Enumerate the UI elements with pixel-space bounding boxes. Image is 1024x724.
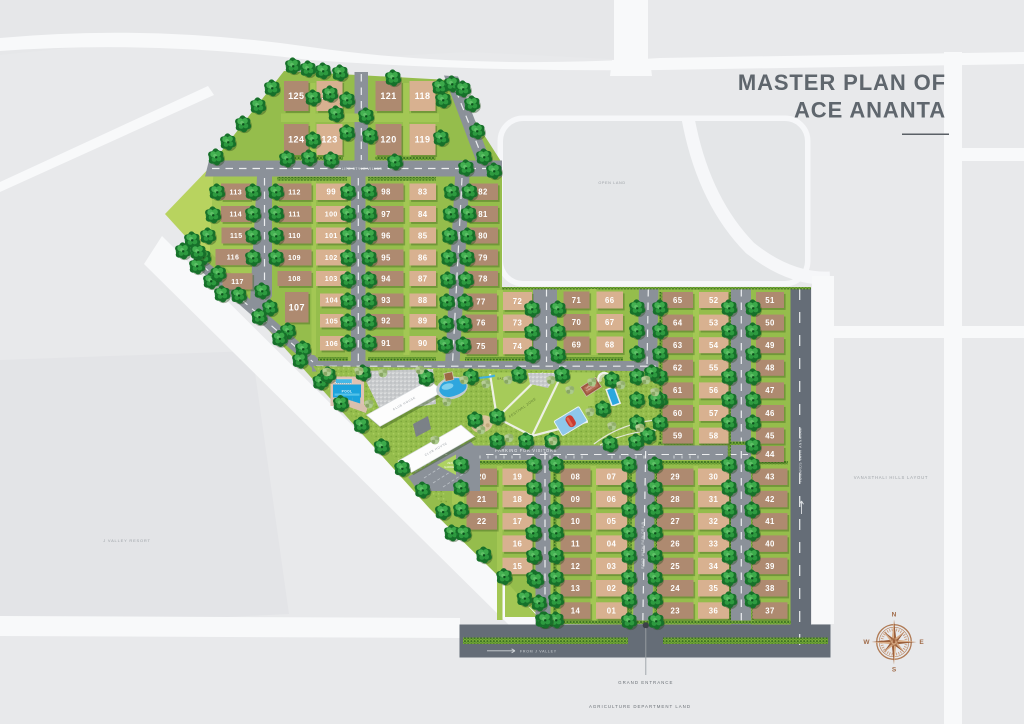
svg-text:VANASTHALI HILLS LAYOUT: VANASTHALI HILLS LAYOUT bbox=[854, 475, 929, 480]
svg-text:125: 125 bbox=[288, 91, 304, 101]
svg-text:63: 63 bbox=[673, 341, 683, 350]
svg-text:13: 13 bbox=[571, 584, 581, 593]
svg-text:90: 90 bbox=[418, 339, 428, 348]
svg-text:LIFE STYLE VILLAS: LIFE STYLE VILLAS bbox=[342, 167, 383, 171]
svg-text:79: 79 bbox=[478, 253, 488, 262]
svg-text:06: 06 bbox=[607, 495, 617, 504]
svg-text:57: 57 bbox=[709, 409, 718, 418]
svg-text:35: 35 bbox=[709, 584, 719, 593]
svg-text:121: 121 bbox=[380, 91, 396, 101]
svg-text:84: 84 bbox=[418, 210, 428, 219]
svg-text:97: 97 bbox=[381, 210, 390, 219]
svg-text:64: 64 bbox=[673, 318, 683, 327]
svg-text:62: 62 bbox=[673, 364, 683, 373]
svg-text:71: 71 bbox=[572, 296, 582, 305]
svg-text:MASTER PLAN OF: MASTER PLAN OF bbox=[738, 70, 946, 95]
svg-text:109: 109 bbox=[288, 255, 301, 262]
svg-text:123: 123 bbox=[321, 135, 337, 145]
svg-text:25: 25 bbox=[671, 562, 681, 571]
svg-text:03: 03 bbox=[607, 562, 617, 571]
svg-text:105: 105 bbox=[325, 318, 338, 325]
svg-text:108: 108 bbox=[288, 276, 301, 283]
svg-text:59: 59 bbox=[673, 431, 683, 440]
svg-text:43: 43 bbox=[765, 473, 775, 482]
svg-text:15: 15 bbox=[513, 562, 523, 571]
svg-text:01: 01 bbox=[607, 606, 617, 615]
svg-text:05: 05 bbox=[607, 517, 617, 526]
svg-text:32: 32 bbox=[709, 517, 719, 526]
svg-text:14: 14 bbox=[571, 606, 581, 615]
svg-text:103: 103 bbox=[325, 276, 338, 283]
svg-text:E: E bbox=[919, 639, 924, 646]
svg-text:119: 119 bbox=[415, 135, 431, 145]
svg-text:11: 11 bbox=[571, 539, 580, 548]
svg-text:27: 27 bbox=[671, 517, 680, 526]
svg-text:100: 100 bbox=[325, 212, 338, 219]
svg-text:78: 78 bbox=[478, 274, 488, 283]
svg-text:28: 28 bbox=[671, 495, 681, 504]
svg-text:86: 86 bbox=[418, 253, 428, 262]
svg-text:107: 107 bbox=[289, 302, 305, 312]
svg-text:09: 09 bbox=[571, 495, 581, 504]
svg-text:69: 69 bbox=[572, 341, 582, 350]
svg-text:115: 115 bbox=[230, 233, 243, 240]
svg-text:OPEN LAND: OPEN LAND bbox=[598, 181, 625, 185]
svg-text:07: 07 bbox=[607, 473, 616, 482]
svg-text:24: 24 bbox=[671, 584, 681, 593]
svg-text:38: 38 bbox=[765, 584, 775, 593]
svg-text:29: 29 bbox=[671, 473, 681, 482]
svg-text:117: 117 bbox=[231, 279, 244, 286]
svg-text:30: 30 bbox=[709, 473, 719, 482]
svg-text:99: 99 bbox=[327, 188, 337, 197]
svg-text:12: 12 bbox=[571, 562, 581, 571]
svg-text:76: 76 bbox=[476, 319, 486, 328]
svg-text:17: 17 bbox=[513, 517, 522, 526]
svg-text:S: S bbox=[892, 667, 897, 674]
svg-text:POOL: POOL bbox=[342, 390, 353, 394]
svg-text:77: 77 bbox=[476, 298, 485, 307]
svg-text:91: 91 bbox=[381, 339, 391, 348]
svg-text:36: 36 bbox=[709, 606, 719, 615]
svg-text:80: 80 bbox=[478, 231, 488, 240]
svg-text:53: 53 bbox=[709, 318, 719, 327]
svg-text:W: W bbox=[863, 639, 870, 646]
svg-text:TOWARDS TATTI ANNARAM: TOWARDS TATTI ANNARAM bbox=[799, 427, 803, 482]
svg-text:19: 19 bbox=[513, 473, 523, 482]
svg-text:44: 44 bbox=[765, 450, 775, 459]
svg-text:93: 93 bbox=[381, 296, 391, 305]
svg-text:81: 81 bbox=[478, 210, 488, 219]
svg-text:N: N bbox=[892, 612, 897, 619]
svg-text:48: 48 bbox=[765, 364, 775, 373]
svg-text:116: 116 bbox=[227, 255, 240, 262]
svg-text:FROM J VALLEY: FROM J VALLEY bbox=[520, 650, 557, 654]
svg-text:120: 120 bbox=[380, 135, 396, 145]
svg-text:85: 85 bbox=[418, 231, 428, 240]
svg-text:08: 08 bbox=[571, 473, 581, 482]
svg-text:51: 51 bbox=[765, 296, 775, 305]
svg-text:56: 56 bbox=[709, 386, 719, 395]
svg-text:16: 16 bbox=[513, 539, 523, 548]
svg-text:75: 75 bbox=[476, 342, 486, 351]
svg-text:82: 82 bbox=[478, 188, 488, 197]
svg-text:42: 42 bbox=[765, 495, 775, 504]
svg-text:GRAND ENTRANCE: GRAND ENTRANCE bbox=[618, 680, 673, 685]
svg-text:52: 52 bbox=[709, 296, 719, 305]
svg-text:65: 65 bbox=[673, 296, 683, 305]
svg-text:ACE ANANTA: ACE ANANTA bbox=[794, 98, 946, 123]
svg-text:26: 26 bbox=[671, 539, 681, 548]
svg-text:37: 37 bbox=[765, 606, 774, 615]
svg-text:41: 41 bbox=[765, 517, 775, 526]
svg-text:58: 58 bbox=[709, 431, 719, 440]
svg-text:40: 40 bbox=[765, 539, 775, 548]
svg-text:04: 04 bbox=[607, 539, 617, 548]
svg-text:61: 61 bbox=[673, 386, 683, 395]
svg-text:94: 94 bbox=[381, 274, 391, 283]
svg-text:67: 67 bbox=[605, 318, 614, 327]
svg-text:113: 113 bbox=[230, 189, 243, 196]
svg-text:74: 74 bbox=[513, 342, 523, 351]
svg-text:104: 104 bbox=[325, 298, 338, 305]
svg-text:70: 70 bbox=[572, 318, 582, 327]
svg-text:68: 68 bbox=[605, 341, 615, 350]
svg-text:114: 114 bbox=[230, 212, 243, 219]
svg-text:47: 47 bbox=[765, 386, 774, 395]
svg-text:50: 50 bbox=[765, 318, 775, 327]
svg-text:88: 88 bbox=[418, 296, 428, 305]
svg-text:102: 102 bbox=[325, 255, 338, 262]
svg-text:72: 72 bbox=[513, 297, 523, 306]
svg-text:92: 92 bbox=[381, 317, 391, 326]
svg-text:34: 34 bbox=[709, 562, 719, 571]
svg-text:21: 21 bbox=[477, 495, 487, 504]
svg-text:124: 124 bbox=[288, 135, 304, 145]
svg-text:33: 33 bbox=[709, 539, 719, 548]
svg-text:87: 87 bbox=[418, 274, 427, 283]
svg-text:ROAD WITH RAIN DRAIN: ROAD WITH RAIN DRAIN bbox=[641, 521, 645, 569]
svg-text:95: 95 bbox=[381, 253, 391, 262]
svg-text:39: 39 bbox=[765, 562, 775, 571]
svg-text:106: 106 bbox=[325, 341, 338, 348]
svg-text:45: 45 bbox=[765, 431, 775, 440]
svg-text:22: 22 bbox=[477, 517, 487, 526]
svg-text:10: 10 bbox=[571, 517, 581, 526]
svg-text:111: 111 bbox=[288, 212, 300, 219]
svg-text:46: 46 bbox=[765, 409, 775, 418]
svg-text:83: 83 bbox=[418, 188, 428, 197]
svg-text:66: 66 bbox=[605, 296, 615, 305]
svg-text:J VALLEY RESORT: J VALLEY RESORT bbox=[103, 538, 151, 543]
svg-text:02: 02 bbox=[607, 584, 617, 593]
svg-text:23: 23 bbox=[671, 606, 681, 615]
svg-text:55: 55 bbox=[709, 364, 719, 373]
svg-text:89: 89 bbox=[418, 317, 428, 326]
svg-text:118: 118 bbox=[415, 91, 431, 101]
svg-text:18: 18 bbox=[513, 495, 523, 504]
svg-text:98: 98 bbox=[381, 188, 391, 197]
svg-text:73: 73 bbox=[513, 319, 523, 328]
svg-text:101: 101 bbox=[325, 233, 338, 240]
svg-text:112: 112 bbox=[288, 189, 301, 196]
svg-text:54: 54 bbox=[709, 341, 719, 350]
svg-text:110: 110 bbox=[288, 233, 301, 240]
svg-text:49: 49 bbox=[765, 341, 775, 350]
svg-text:60: 60 bbox=[673, 409, 683, 418]
svg-text:96: 96 bbox=[381, 231, 391, 240]
svg-text:31: 31 bbox=[709, 495, 719, 504]
svg-text:AGRICULTURE DEPARTMENT LAND: AGRICULTURE DEPARTMENT LAND bbox=[589, 704, 691, 709]
